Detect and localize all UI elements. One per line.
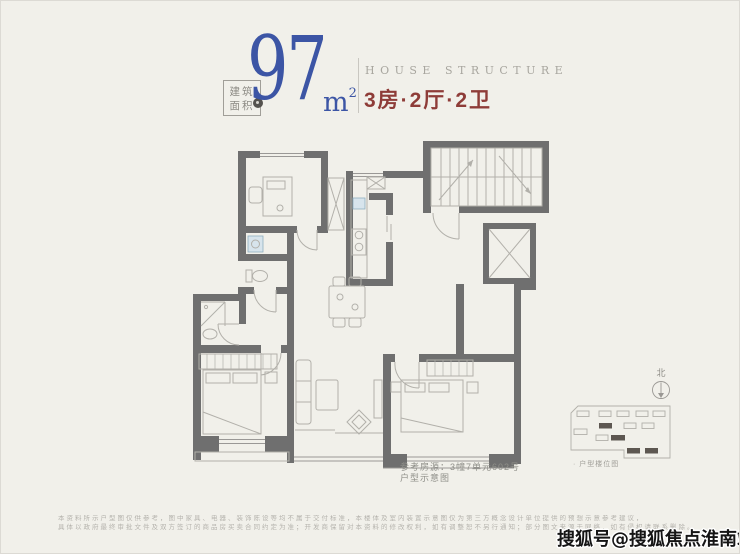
area-unit: m2	[323, 80, 357, 116]
highlighted-building	[599, 423, 612, 429]
chair-icon	[249, 187, 262, 203]
bed-icon	[401, 380, 463, 432]
washer-icon	[248, 236, 263, 252]
site-plan-caption: · 户型楼位图	[573, 459, 619, 469]
sofa-icon	[296, 360, 311, 424]
floorplan-page: 建筑 面积 97 m2 HOUSE STRUCTURE 3房·2厅·2卫	[0, 0, 740, 554]
area-value: 97	[247, 25, 325, 113]
walls	[193, 141, 549, 468]
kitchen	[351, 177, 385, 278]
wardrobe	[427, 360, 473, 376]
header-layout-cn: 3房·2厅·2卫	[364, 84, 492, 114]
highlighted-building	[627, 448, 640, 454]
area-unit-m: m	[323, 87, 349, 118]
coffee-table-icon	[316, 380, 338, 410]
study-room	[249, 177, 292, 216]
dining-table-icon	[329, 286, 365, 318]
lounge-mat-icon	[347, 410, 371, 434]
site-plan	[569, 401, 675, 461]
bathroom	[201, 302, 225, 339]
header-subtitle-en: HOUSE STRUCTURE	[365, 64, 568, 77]
nightstand	[467, 382, 478, 393]
master-bedroom	[391, 360, 478, 432]
stairs-icon	[431, 148, 542, 206]
kitchen-sink-icon	[353, 198, 365, 209]
plan-caption-line1: 参考房源：3幢7单元602号	[400, 462, 520, 473]
highlighted-building	[645, 448, 658, 454]
tv-stand-icon	[374, 380, 382, 418]
elevator-icon	[489, 229, 530, 278]
site-buildings	[574, 411, 665, 454]
header-divider	[358, 58, 359, 113]
bed-icon	[203, 370, 261, 434]
area-unit-sup: 2	[349, 86, 357, 101]
north-compass-icon: 北	[649, 367, 673, 403]
nightstand	[391, 382, 401, 392]
wardrobe	[199, 354, 277, 369]
north-label: 北	[656, 368, 665, 378]
toilet-icon	[246, 270, 268, 282]
highlighted-building	[611, 435, 625, 441]
disclaimer-line1: 本资料所示户型图仅供参考，图中家具、电器、装饰陈设等均不属于交付标准，本楼体及室…	[58, 515, 706, 524]
shaft	[328, 178, 344, 230]
floor-plan	[129, 130, 569, 486]
living-dining	[296, 277, 382, 434]
plan-caption: 参考房源：3幢7单元602号 户型示意图	[400, 462, 520, 484]
watermark: 搜狐号@搜狐焦点淮南站	[557, 525, 740, 551]
bedroom-2	[199, 354, 277, 434]
plan-caption-line2: 户型示意图	[400, 473, 520, 484]
sink-icon	[203, 329, 217, 339]
